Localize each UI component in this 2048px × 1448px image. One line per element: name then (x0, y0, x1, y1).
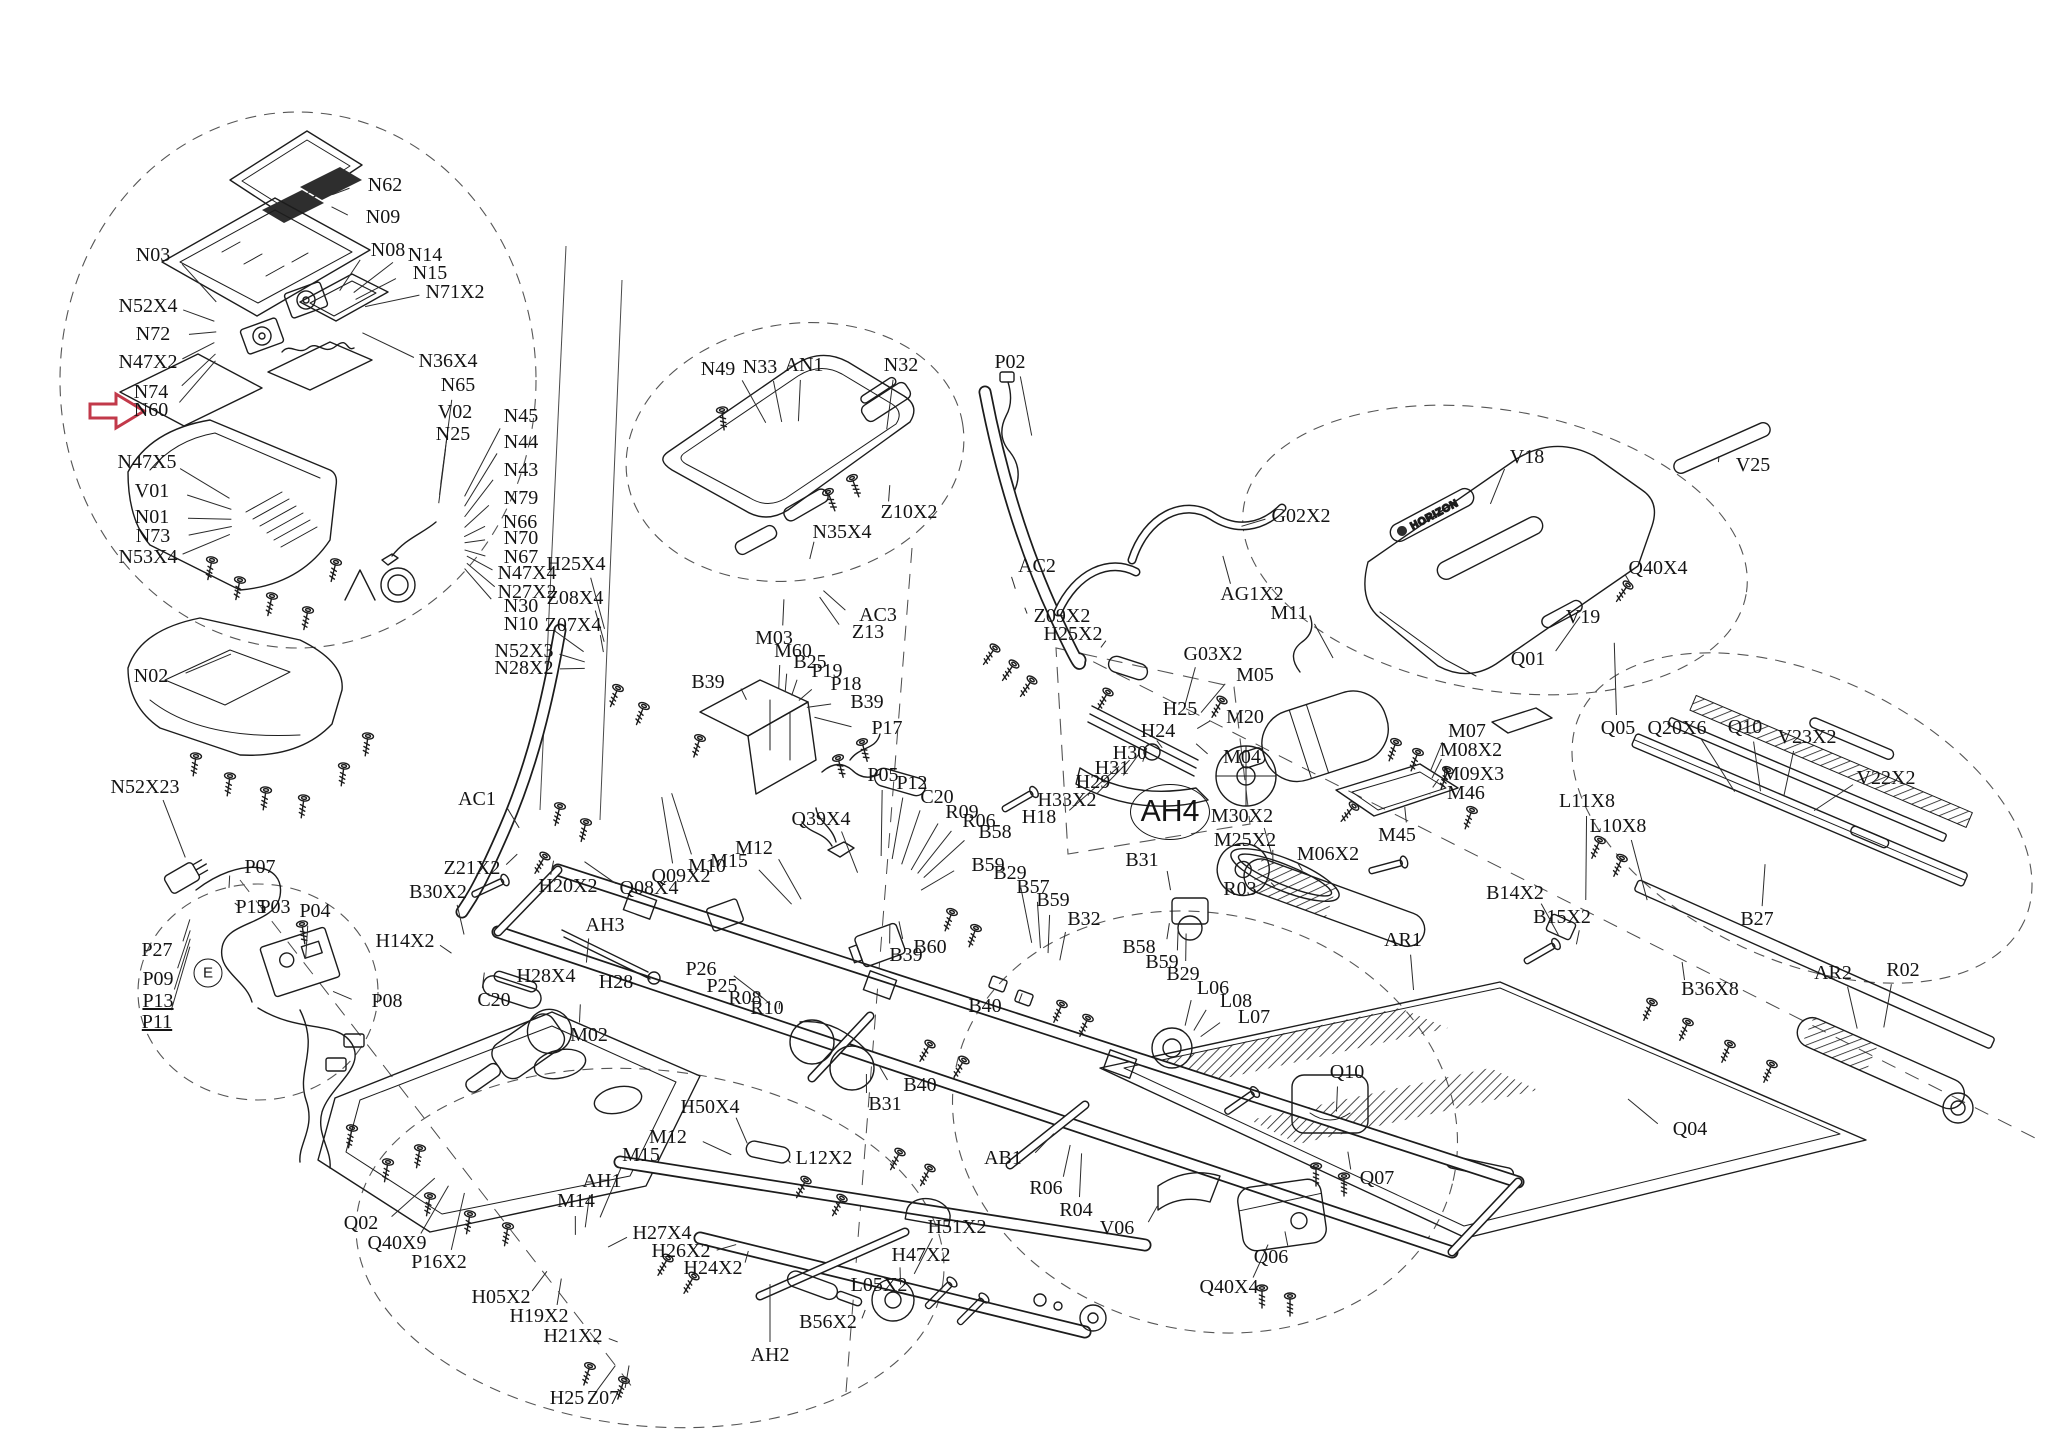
part-label-n35x4: N35X4 (813, 522, 872, 542)
part-label-v18: V18 (1510, 447, 1544, 467)
part-label-n10: N10 (504, 614, 538, 634)
part-label-n60: N60 (134, 400, 168, 420)
part-label-p09: P09 (142, 969, 173, 989)
part-label-ar1: AR1 (1384, 930, 1422, 950)
part-label-n47x5: N47X5 (118, 452, 177, 472)
part-label-q20x6: Q20X6 (1648, 718, 1707, 738)
part-label-h28: H28 (599, 972, 633, 992)
part-label-p02: P02 (994, 352, 1025, 372)
part-label-p05: P05 (867, 765, 898, 785)
part-label-h14x2: H14X2 (376, 931, 435, 951)
part-label-ab1: AB1 (984, 1148, 1022, 1168)
part-label-q06: Q06 (1254, 1247, 1288, 1267)
part-label-b56x2: B56X2 (799, 1312, 857, 1332)
part-label-p08: P08 (371, 991, 402, 1011)
part-label-h25: H25 (1163, 699, 1197, 719)
part-label-h47x2: H47X2 (892, 1245, 951, 1265)
part-label-q02: Q02 (344, 1213, 378, 1233)
part-label-h50x4: H50X4 (681, 1097, 740, 1117)
part-label-z21x2: Z21X2 (444, 858, 501, 878)
part-label-v06: V06 (1100, 1218, 1134, 1238)
part-label-v25: V25 (1736, 455, 1770, 475)
part-label-b15x2: B15X2 (1533, 907, 1591, 927)
part-label-q08x4: Q08X4 (620, 878, 679, 898)
part-label-h24x2: H24X2 (684, 1258, 743, 1278)
part-label-p17: P17 (871, 718, 902, 738)
part-label-z07: Z07 (587, 1388, 619, 1408)
part-label-b58: B58 (978, 822, 1011, 842)
main-frame-art (498, 870, 1518, 1252)
part-label-b40: B40 (903, 1075, 936, 1095)
part-label-an1: AN1 (785, 355, 824, 375)
cluster-outlines (60, 112, 2048, 1448)
part-label-b39: B39 (889, 945, 922, 965)
part-label-v23x2: V23X2 (1778, 727, 1837, 747)
part-label-q39x4: Q39X4 (792, 809, 851, 829)
part-label-h24: H24 (1141, 721, 1175, 741)
part-label-n33: N33 (743, 357, 777, 377)
part-label-r03: R03 (1223, 879, 1256, 899)
part-label-q40x4: Q40X4 (1629, 558, 1688, 578)
part-label-v19: V19 (1566, 607, 1600, 627)
part-label-ac2: AC2 (1018, 556, 1056, 576)
part-label-q10: Q10 (1728, 717, 1762, 737)
part-label-q05: Q05 (1601, 718, 1635, 738)
part-label-n52x23: N52X23 (111, 777, 180, 797)
part-label-ag1x2: AG1X2 (1220, 584, 1283, 604)
part-label-p25: P25 (706, 976, 737, 996)
part-label-m05: M05 (1236, 665, 1274, 685)
part-label-q40x9: Q40X9 (368, 1233, 427, 1253)
part-label-m08x2: M08X2 (1440, 740, 1502, 760)
callout-tag-ah4: AH4 (1130, 784, 1210, 840)
part-label-m09x3: M09X3 (1442, 764, 1504, 784)
part-label-m14: M14 (557, 1191, 595, 1211)
part-label-h21x2: H21X2 (544, 1326, 603, 1346)
part-label-r04: R04 (1059, 1200, 1092, 1220)
part-label-l05x2: L05X2 (851, 1275, 908, 1295)
part-label-n02: N02 (134, 666, 168, 686)
part-label-b39: B39 (691, 672, 724, 692)
part-label-h18: H18 (1022, 807, 1056, 827)
part-label-m07: M07 (1448, 721, 1486, 741)
part-label-n36x4: N36X4 (419, 351, 478, 371)
part-label-n62: N62 (368, 175, 402, 195)
part-label-m45: M45 (1378, 825, 1416, 845)
console-cluster-art (120, 131, 436, 819)
part-label-h28x4: H28X4 (517, 966, 576, 986)
part-label-p03: P03 (259, 897, 290, 917)
part-label-n01: N01 (135, 507, 169, 527)
part-label-l07: L07 (1238, 1007, 1270, 1027)
part-label-m25x2: M25X2 (1214, 830, 1276, 850)
part-label-n73: N73 (136, 526, 170, 546)
part-label-n32: N32 (884, 355, 918, 375)
part-label-n15: N15 (413, 263, 447, 283)
part-label-m30x2: M30X2 (1211, 806, 1273, 826)
part-label-l11x8: L11X8 (1559, 791, 1615, 811)
part-label-n44: N44 (504, 432, 538, 452)
part-label-n65: N65 (441, 375, 475, 395)
part-label-l10x8: L10X8 (1590, 816, 1647, 836)
part-label-h20x2: H20X2 (539, 876, 598, 896)
part-label-ac1: AC1 (458, 789, 496, 809)
part-label-m15: M15 (622, 1145, 660, 1165)
part-label-v02: V02 (438, 402, 472, 422)
part-label-ah1: AH1 (583, 1171, 622, 1191)
part-label-p07: P07 (244, 857, 275, 877)
part-label-p11: P11 (142, 1012, 172, 1032)
part-label-b36x8: B36X8 (1681, 979, 1739, 999)
part-label-n71x2: N71X2 (426, 282, 485, 302)
part-label-b59: B59 (1036, 890, 1069, 910)
part-label-c20: C20 (477, 990, 510, 1010)
part-label-n79: N79 (504, 488, 538, 508)
part-label-n72: N72 (136, 324, 170, 344)
part-label-n43: N43 (504, 460, 538, 480)
part-label-n45: N45 (504, 406, 538, 426)
part-label-l12x2: L12X2 (796, 1148, 853, 1168)
part-label-z13: Z13 (852, 622, 884, 642)
part-label-b27: B27 (1740, 909, 1773, 929)
part-label-r10: R10 (750, 998, 783, 1018)
part-label-n08: N08 (371, 240, 405, 260)
part-label-n47x2: N47X2 (119, 352, 178, 372)
brand-logo: HORIZON (1387, 485, 1477, 544)
part-label-h51x2: H51X2 (928, 1217, 987, 1237)
part-label-n53x4: N53X4 (119, 547, 178, 567)
part-label-b30x2: B30X2 (409, 882, 467, 902)
part-label-p27: P27 (141, 940, 172, 960)
part-label-m11: M11 (1270, 603, 1307, 623)
part-label-h05x2: H05X2 (472, 1287, 531, 1307)
part-label-m02: M02 (570, 1025, 608, 1045)
part-label-p13: P13 (142, 991, 173, 1011)
part-label-p16x2: P16X2 (411, 1252, 467, 1272)
part-label-q04: Q04 (1673, 1119, 1707, 1139)
part-label-n25: N25 (436, 424, 470, 444)
part-label-n28x2: N28X2 (495, 658, 554, 678)
part-label-h25: H25 (550, 1388, 584, 1408)
part-label-q40x4: Q40X4 (1200, 1277, 1259, 1297)
part-label-ah2: AH2 (751, 1345, 790, 1365)
part-label-z10x2: Z10X2 (881, 502, 938, 522)
part-label-q10: Q10 (1330, 1062, 1364, 1082)
part-label-q07: Q07 (1360, 1168, 1394, 1188)
part-label-m20: M20 (1226, 707, 1264, 727)
part-label-b32: B32 (1067, 909, 1100, 929)
part-label-z08x4: Z08X4 (547, 588, 604, 608)
part-label-n49: N49 (701, 359, 735, 379)
part-label-b31: B31 (868, 1094, 901, 1114)
part-label-m06x2: M06X2 (1297, 844, 1359, 864)
part-label-m04: M04 (1223, 747, 1261, 767)
part-label-z07x4: Z07X4 (545, 615, 602, 635)
part-label-b29: B29 (1166, 964, 1199, 984)
part-label-r06: R06 (1029, 1178, 1062, 1198)
part-label-ah3: AH3 (586, 915, 625, 935)
part-label-h25x2: H25X2 (1044, 624, 1103, 644)
part-label-b31: B31 (1125, 850, 1158, 870)
base-pan-art (318, 1001, 700, 1247)
part-label-v22x2: V22X2 (1857, 768, 1916, 788)
part-label-q01: Q01 (1511, 649, 1545, 669)
part-label-b40: B40 (968, 996, 1001, 1016)
part-label-g02x2: G02X2 (1272, 506, 1331, 526)
part-label-n03: N03 (136, 245, 170, 265)
part-label-b39: B39 (850, 692, 883, 712)
callout-tag-e: E (194, 959, 223, 988)
part-label-p04: P04 (299, 901, 330, 921)
part-label-ar2: AR2 (1814, 963, 1852, 983)
part-label-b14x2: B14X2 (1486, 883, 1544, 903)
part-label-h25x4: H25X4 (547, 554, 606, 574)
part-label-h19x2: H19X2 (510, 1306, 569, 1326)
part-label-n70: N70 (504, 528, 538, 548)
motor-hood-cluster-art: HORIZON (1365, 420, 1772, 676)
part-label-n09: N09 (366, 207, 400, 227)
part-label-n52x4: N52X4 (119, 296, 178, 316)
part-label-m46: M46 (1447, 783, 1485, 803)
part-label-v01: V01 (135, 481, 169, 501)
part-label-g03x2: G03X2 (1184, 644, 1243, 664)
part-label-r02: R02 (1886, 960, 1919, 980)
exploded-diagram-canvas: HORIZON (0, 0, 2048, 1448)
